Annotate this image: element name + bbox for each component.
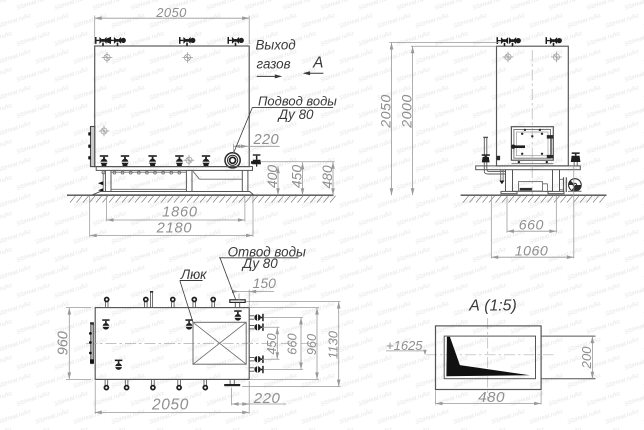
svg-text:2050: 2050 [155,5,187,20]
svg-text:SibHeat.ru/kz: SibHeat.ru/kz [396,319,431,336]
svg-text:SibHeat.ru/kz: SibHeat.ru/kz [16,247,51,264]
svg-text:SibHeat.ru/kz: SibHeat.ru/kz [358,211,393,228]
svg-text:SibHeat.ru/kz: SibHeat.ru/kz [206,175,241,192]
svg-text:Выход: Выход [256,38,296,53]
svg-text:SibHeat.ru/kz: SibHeat.ru/kz [263,409,298,426]
svg-text:SibHeat.ru/kz: SibHeat.ru/kz [567,13,602,30]
svg-text:SibHeat.ru/kz: SibHeat.ru/kz [54,31,89,48]
svg-text:SibHeat.ru/kz: SibHeat.ru/kz [320,283,355,300]
svg-text:SibHeat.ru/kz: SibHeat.ru/kz [624,175,644,192]
svg-text:SibHeat.ru/kz: SibHeat.ru/kz [415,121,450,138]
svg-text:SibHeat.ru/kz: SibHeat.ru/kz [168,67,203,84]
svg-text:SibHeat.ru/kz: SibHeat.ru/kz [187,85,222,102]
svg-text:SibHeat.ru/kz: SibHeat.ru/kz [510,391,545,408]
svg-text:SibHeat.ru/kz: SibHeat.ru/kz [548,283,583,300]
svg-text:SibHeat.ru/kz: SibHeat.ru/kz [0,247,13,264]
svg-text:Люк: Люк [180,267,207,282]
svg-text:SibHeat.ru/kz: SibHeat.ru/kz [35,13,70,30]
svg-text:SibHeat.ru/kz: SibHeat.ru/kz [130,67,165,84]
svg-text:SibHeat.ru/kz: SibHeat.ru/kz [339,121,374,138]
svg-text:SibHeat.ru/kz: SibHeat.ru/kz [244,0,279,12]
svg-text:SibHeat.ru/kz: SibHeat.ru/kz [16,319,51,336]
svg-text:SibHeat.ru/kz: SibHeat.ru/kz [35,373,70,390]
svg-text:SibHeat.ru/kz: SibHeat.ru/kz [434,139,469,156]
svg-text:SibHeat.ru/kz: SibHeat.ru/kz [434,283,469,300]
svg-text:SibHeat.ru/kz: SibHeat.ru/kz [263,229,298,246]
svg-text:SibHeat.ru/kz: SibHeat.ru/kz [624,67,644,84]
svg-text:SibHeat.ru/kz: SibHeat.ru/kz [529,85,564,102]
svg-text:SibHeat.ru/kz: SibHeat.ru/kz [149,301,184,318]
svg-text:SibHeat.ru/kz: SibHeat.ru/kz [605,229,640,246]
svg-text:SibHeat.ru/kz: SibHeat.ru/kz [605,13,640,30]
svg-text:SibHeat.ru/kz: SibHeat.ru/kz [16,139,51,156]
svg-text:SibHeat.ru/kz: SibHeat.ru/kz [35,85,70,102]
svg-text:SibHeat.ru/kz: SibHeat.ru/kz [92,283,127,300]
svg-text:150: 150 [253,275,277,291]
svg-text:SibHeat.ru/kz: SibHeat.ru/kz [339,193,374,210]
svg-text:SibHeat.ru/kz: SibHeat.ru/kz [453,409,488,426]
svg-text:SibHeat.ru/kz: SibHeat.ru/kz [301,121,336,138]
svg-text:SibHeat.ru/kz: SibHeat.ru/kz [491,337,526,354]
svg-text:1860: 1860 [162,205,198,221]
svg-text:SibHeat.ru/kz: SibHeat.ru/kz [35,265,70,282]
svg-text:SibHeat.ru/kz: SibHeat.ru/kz [301,13,336,30]
svg-text:SibHeat.ru/kz: SibHeat.ru/kz [225,85,260,102]
svg-text:SibHeat.ru/kz: SibHeat.ru/kz [206,103,241,120]
svg-text:SibHeat.ru/kz: SibHeat.ru/kz [548,247,583,264]
svg-text:SibHeat.ru/kz: SibHeat.ru/kz [282,139,317,156]
svg-text:450: 450 [264,332,279,354]
svg-text:SibHeat.ru/kz: SibHeat.ru/kz [73,13,108,30]
svg-text:SibHeat.ru/kz: SibHeat.ru/kz [16,283,51,300]
svg-text:SibHeat.ru/kz: SibHeat.ru/kz [491,409,526,426]
svg-text:SibHeat.ru/kz: SibHeat.ru/kz [92,67,127,84]
svg-text:SibHeat.ru/kz: SibHeat.ru/kz [225,229,260,246]
svg-text:SibHeat.ru/kz: SibHeat.ru/kz [111,409,146,426]
svg-text:SibHeat.ru/kz: SibHeat.ru/kz [320,0,355,12]
svg-text:SibHeat.ru/kz: SibHeat.ru/kz [187,121,222,138]
svg-text:SibHeat.ru/kz: SibHeat.ru/kz [434,103,469,120]
svg-text:2050: 2050 [378,94,394,129]
svg-text:SibHeat.ru/kz: SibHeat.ru/kz [0,319,13,336]
svg-text:SibHeat.ru/kz: SibHeat.ru/kz [0,355,13,372]
svg-text:SibHeat.ru/kz: SibHeat.ru/kz [358,0,393,12]
svg-text:SibHeat.ru/kz: SibHeat.ru/kz [130,319,165,336]
svg-text:SibHeat.ru/kz: SibHeat.ru/kz [187,301,222,318]
svg-text:960: 960 [304,333,319,355]
svg-text:SibHeat.ru/kz: SibHeat.ru/kz [0,85,32,102]
svg-text:SibHeat.ru/kz: SibHeat.ru/kz [0,139,13,156]
svg-text:SibHeat.ru/kz: SibHeat.ru/kz [377,301,412,318]
svg-text:SibHeat.ru/kz: SibHeat.ru/kz [377,13,412,30]
svg-text:SibHeat.ru/kz: SibHeat.ru/kz [0,13,32,30]
svg-text:SibHeat.ru/kz: SibHeat.ru/kz [586,0,621,12]
svg-text:SibHeat.ru/kz: SibHeat.ru/kz [548,355,583,372]
svg-text:SibHeat.ru/kz: SibHeat.ru/kz [567,229,602,246]
svg-text:SibHeat.ru/kz: SibHeat.ru/kz [301,409,336,426]
svg-text:SibHeat.ru/kz: SibHeat.ru/kz [206,211,241,228]
svg-text:SibHeat.ru/kz: SibHeat.ru/kz [548,67,583,84]
svg-text:SibHeat.ru/kz: SibHeat.ru/kz [415,229,450,246]
svg-text:SibHeat.ru/kz: SibHeat.ru/kz [339,13,374,30]
svg-text:SibHeat.ru/kz: SibHeat.ru/kz [453,49,488,66]
svg-text:SibHeat.ru/kz: SibHeat.ru/kz [453,229,488,246]
svg-text:SibHeat.ru/kz: SibHeat.ru/kz [567,49,602,66]
svg-text:SibHeat.ru/kz: SibHeat.ru/kz [111,13,146,30]
svg-text:SibHeat.ru/kz: SibHeat.ru/kz [567,121,602,138]
svg-text:SibHeat.ru/kz: SibHeat.ru/kz [472,103,507,120]
svg-text:SibHeat.ru/kz: SibHeat.ru/kz [149,49,184,66]
svg-text:SibHeat.ru/kz: SibHeat.ru/kz [16,355,51,372]
svg-text:SibHeat.ru/kz: SibHeat.ru/kz [529,157,564,174]
svg-text:SibHeat.ru/kz: SibHeat.ru/kz [339,409,374,426]
svg-text:SibHeat.ru/kz: SibHeat.ru/kz [358,283,393,300]
svg-text:SibHeat.ru/kz: SibHeat.ru/kz [263,301,298,318]
svg-text:SibHeat.ru/kz: SibHeat.ru/kz [73,265,108,282]
svg-text:SibHeat.ru/kz: SibHeat.ru/kz [491,265,526,282]
svg-text:SibHeat.ru/kz: SibHeat.ru/kz [586,247,621,264]
svg-text:SibHeat.ru/kz: SibHeat.ru/kz [0,67,13,84]
svg-text:SibHeat.ru/kz: SibHeat.ru/kz [605,85,640,102]
svg-text:SibHeat.ru/kz: SibHeat.ru/kz [510,67,545,84]
svg-text:SibHeat.ru/kz: SibHeat.ru/kz [567,265,602,282]
svg-text:SibHeat.ru/kz: SibHeat.ru/kz [396,31,431,48]
svg-text:SibHeat.ru/kz: SibHeat.ru/kz [92,139,127,156]
svg-text:SibHeat.ru/kz: SibHeat.ru/kz [605,409,640,426]
svg-text:SibHeat.ru/kz: SibHeat.ru/kz [415,193,450,210]
svg-text:SibHeat.ru/kz: SibHeat.ru/kz [168,319,203,336]
svg-text:SibHeat.ru/kz: SibHeat.ru/kz [377,373,412,390]
svg-text:660: 660 [285,332,300,354]
svg-text:SibHeat.ru/kz: SibHeat.ru/kz [548,0,583,12]
svg-text:SibHeat.ru/kz: SibHeat.ru/kz [358,139,393,156]
svg-text:SibHeat.ru/kz: SibHeat.ru/kz [415,301,450,318]
svg-text:SibHeat.ru/kz: SibHeat.ru/kz [73,229,108,246]
svg-text:SibHeat.ru/kz: SibHeat.ru/kz [624,103,644,120]
svg-text:SibHeat.ru/kz: SibHeat.ru/kz [92,103,127,120]
svg-text:SibHeat.ru/kz: SibHeat.ru/kz [54,355,89,372]
svg-text:450: 450 [289,165,305,189]
svg-text:SibHeat.ru/kz: SibHeat.ru/kz [358,247,393,264]
svg-text:200: 200 [579,346,594,370]
svg-text:2050: 2050 [151,397,189,414]
svg-text:SibHeat.ru/kz: SibHeat.ru/kz [624,31,644,48]
svg-text:SibHeat.ru/kz: SibHeat.ru/kz [130,139,165,156]
svg-text:SibHeat.ru/kz: SibHeat.ru/kz [377,49,412,66]
svg-text:SibHeat.ru/kz: SibHeat.ru/kz [415,409,450,426]
svg-text:SibHeat.ru/kz: SibHeat.ru/kz [282,319,317,336]
svg-text:SibHeat.ru/kz: SibHeat.ru/kz [54,283,89,300]
svg-text:SibHeat.ru/kz: SibHeat.ru/kz [586,139,621,156]
svg-text:SibHeat.ru/kz: SibHeat.ru/kz [415,157,450,174]
svg-text:SibHeat.ru/kz: SibHeat.ru/kz [320,211,355,228]
svg-text:SibHeat.ru/kz: SibHeat.ru/kz [16,0,51,12]
svg-text:SibHeat.ru/kz: SibHeat.ru/kz [282,283,317,300]
svg-text:SibHeat.ru/kz: SibHeat.ru/kz [282,391,317,408]
svg-text:SibHeat.ru/kz: SibHeat.ru/kz [472,211,507,228]
svg-text:SibHeat.ru/kz: SibHeat.ru/kz [396,355,431,372]
svg-text:SibHeat.ru/kz: SibHeat.ru/kz [339,301,374,318]
svg-text:SibHeat.ru/kz: SibHeat.ru/kz [73,301,108,318]
svg-text:SibHeat.ru/kz: SibHeat.ru/kz [168,355,203,372]
svg-text:SibHeat.ru/kz: SibHeat.ru/kz [16,211,51,228]
svg-text:SibHeat.ru/kz: SibHeat.ru/kz [54,247,89,264]
svg-text:SibHeat.ru/kz: SibHeat.ru/kz [168,247,203,264]
svg-text:SibHeat.ru/kz: SibHeat.ru/kz [0,211,13,228]
svg-text:SibHeat.ru/kz: SibHeat.ru/kz [54,211,89,228]
svg-text:2000: 2000 [400,94,416,129]
svg-text:SibHeat.ru/kz: SibHeat.ru/kz [0,373,32,390]
svg-text:SibHeat.ru/kz: SibHeat.ru/kz [0,103,13,120]
svg-text:SibHeat.ru/kz: SibHeat.ru/kz [168,103,203,120]
svg-text:SibHeat.ru/kz: SibHeat.ru/kz [35,301,70,318]
svg-text:SibHeat.ru/kz: SibHeat.ru/kz [130,247,165,264]
svg-text:SibHeat.ru/kz: SibHeat.ru/kz [548,211,583,228]
svg-text:SibHeat.ru/kz: SibHeat.ru/kz [358,175,393,192]
svg-text:SibHeat.ru/kz: SibHeat.ru/kz [16,391,51,408]
svg-text:SibHeat.ru/kz: SibHeat.ru/kz [111,337,146,354]
svg-text:SibHeat.ru/kz: SibHeat.ru/kz [0,193,32,210]
svg-text:SibHeat.ru/kz: SibHeat.ru/kz [0,157,32,174]
svg-text:SibHeat.ru/kz: SibHeat.ru/kz [301,229,336,246]
svg-text:SibHeat.ru/kz: SibHeat.ru/kz [0,229,32,246]
svg-text:SibHeat.ru/kz: SibHeat.ru/kz [529,265,564,282]
svg-text:SibHeat.ru/kz: SibHeat.ru/kz [320,67,355,84]
svg-text:SibHeat.ru/kz: SibHeat.ru/kz [0,409,32,426]
svg-text:SibHeat.ru/kz: SibHeat.ru/kz [54,67,89,84]
svg-text:SibHeat.ru/kz: SibHeat.ru/kz [377,229,412,246]
svg-text:SibHeat.ru/kz: SibHeat.ru/kz [16,103,51,120]
svg-text:SibHeat.ru/kz: SibHeat.ru/kz [301,265,336,282]
svg-text:SibHeat.ru/kz: SibHeat.ru/kz [0,175,13,192]
svg-text:SibHeat.ru/kz: SibHeat.ru/kz [16,31,51,48]
svg-text:SibHeat.ru/kz: SibHeat.ru/kz [111,121,146,138]
svg-text:SibHeat.ru/kz: SibHeat.ru/kz [377,157,412,174]
svg-text:SibHeat.ru/kz: SibHeat.ru/kz [130,103,165,120]
svg-text:SibHeat.ru/kz: SibHeat.ru/kz [491,13,526,30]
svg-text:SibHeat.ru/kz: SibHeat.ru/kz [0,31,13,48]
svg-text:SibHeat.ru/kz: SibHeat.ru/kz [54,175,89,192]
svg-text:SibHeat.ru/kz: SibHeat.ru/kz [282,211,317,228]
svg-text:SibHeat.ru/kz: SibHeat.ru/kz [586,31,621,48]
svg-text:SibHeat.ru/kz: SibHeat.ru/kz [92,0,127,12]
svg-text:SibHeat.ru/kz: SibHeat.ru/kz [415,373,450,390]
svg-text:SibHeat.ru/kz: SibHeat.ru/kz [453,13,488,30]
svg-text:SibHeat.ru/kz: SibHeat.ru/kz [16,175,51,192]
svg-text:SibHeat.ru/kz: SibHeat.ru/kz [605,121,640,138]
svg-text:SibHeat.ru/kz: SibHeat.ru/kz [35,121,70,138]
svg-text:SibHeat.ru/kz: SibHeat.ru/kz [54,103,89,120]
svg-text:SibHeat.ru/kz: SibHeat.ru/kz [605,49,640,66]
svg-text:SibHeat.ru/kz: SibHeat.ru/kz [339,229,374,246]
svg-text:SibHeat.ru/kz: SibHeat.ru/kz [586,211,621,228]
svg-text:SibHeat.ru/kz: SibHeat.ru/kz [567,301,602,318]
svg-text:SibHeat.ru/kz: SibHeat.ru/kz [54,139,89,156]
svg-text:SibHeat.ru/kz: SibHeat.ru/kz [567,85,602,102]
svg-text:SibHeat.ru/kz: SibHeat.ru/kz [263,13,298,30]
svg-text:SibHeat.ru/kz: SibHeat.ru/kz [415,265,450,282]
svg-text:SibHeat.ru/kz: SibHeat.ru/kz [510,103,545,120]
svg-text:SibHeat.ru/kz: SibHeat.ru/kz [472,319,507,336]
svg-text:1060: 1060 [515,243,549,259]
svg-text:SibHeat.ru/kz: SibHeat.ru/kz [35,49,70,66]
svg-text:SibHeat.ru/kz: SibHeat.ru/kz [434,67,469,84]
svg-text:SibHeat.ru/kz: SibHeat.ru/kz [320,247,355,264]
svg-text:960: 960 [56,331,72,355]
svg-text:SibHeat.ru/kz: SibHeat.ru/kz [396,247,431,264]
svg-text:SibHeat.ru/kz: SibHeat.ru/kz [206,319,241,336]
svg-text:SibHeat.ru/kz: SibHeat.ru/kz [168,139,203,156]
svg-text:SibHeat.ru/kz: SibHeat.ru/kz [396,67,431,84]
svg-text:SibHeat.ru/kz: SibHeat.ru/kz [396,139,431,156]
svg-text:SibHeat.ru/kz: SibHeat.ru/kz [434,391,469,408]
svg-text:SibHeat.ru/kz: SibHeat.ru/kz [605,265,640,282]
svg-text:SibHeat.ru/kz: SibHeat.ru/kz [453,337,488,354]
svg-text:SibHeat.ru/kz: SibHeat.ru/kz [605,373,640,390]
svg-text:SibHeat.ru/kz: SibHeat.ru/kz [434,31,469,48]
svg-text:SibHeat.ru/kz: SibHeat.ru/kz [396,0,431,12]
svg-text:SibHeat.ru/kz: SibHeat.ru/kz [149,265,184,282]
svg-text:SibHeat.ru/kz: SibHeat.ru/kz [206,355,241,372]
svg-text:SibHeat.ru/kz: SibHeat.ru/kz [187,409,222,426]
svg-text:660: 660 [519,218,544,234]
svg-text:SibHeat.ru/kz: SibHeat.ru/kz [0,121,32,138]
svg-text:SibHeat.ru/kz: SibHeat.ru/kz [206,0,241,12]
svg-text:SibHeat.ru/kz: SibHeat.ru/kz [73,409,108,426]
svg-text:SibHeat.ru/kz: SibHeat.ru/kz [472,0,507,12]
svg-text:SibHeat.ru/kz: SibHeat.ru/kz [320,391,355,408]
svg-text:SibHeat.ru/kz: SibHeat.ru/kz [453,85,488,102]
svg-text:SibHeat.ru/kz: SibHeat.ru/kz [263,373,298,390]
svg-text:SibHeat.ru/kz: SibHeat.ru/kz [377,193,412,210]
svg-text:SibHeat.ru/kz: SibHeat.ru/kz [73,373,108,390]
svg-text:SibHeat.ru/kz: SibHeat.ru/kz [320,139,355,156]
svg-text:SibHeat.ru/kz: SibHeat.ru/kz [301,301,336,318]
svg-text:SibHeat.ru/kz: SibHeat.ru/kz [510,0,545,12]
svg-text:SibHeat.ru/kz: SibHeat.ru/kz [415,85,450,102]
svg-text:SibHeat.ru/kz: SibHeat.ru/kz [187,13,222,30]
svg-text:SibHeat.ru/kz: SibHeat.ru/kz [510,319,545,336]
svg-text:SibHeat.ru/kz: SibHeat.ru/kz [0,301,32,318]
svg-text:SibHeat.ru/kz: SibHeat.ru/kz [624,319,644,336]
svg-text:SibHeat.ru/kz: SibHeat.ru/kz [339,337,374,354]
svg-text:220: 220 [253,132,280,148]
svg-text:SibHeat.ru/kz: SibHeat.ru/kz [0,0,13,12]
svg-text:SibHeat.ru/kz: SibHeat.ru/kz [111,157,146,174]
svg-text:2180: 2180 [156,220,193,236]
svg-text:SibHeat.ru/kz: SibHeat.ru/kz [54,391,89,408]
svg-text:SibHeat.ru/kz: SibHeat.ru/kz [35,229,70,246]
svg-text:SibHeat.ru/kz: SibHeat.ru/kz [339,265,374,282]
svg-text:SibHeat.ru/kz: SibHeat.ru/kz [624,355,644,372]
svg-text:SibHeat.ru/kz: SibHeat.ru/kz [586,391,621,408]
svg-text:220: 220 [253,390,281,407]
svg-text:SibHeat.ru/kz: SibHeat.ru/kz [16,67,51,84]
svg-text:SibHeat.ru/kz: SibHeat.ru/kz [472,139,507,156]
svg-text:SibHeat.ru/kz: SibHeat.ru/kz [339,157,374,174]
svg-text:SibHeat.ru/kz: SibHeat.ru/kz [377,409,412,426]
svg-text:SibHeat.ru/kz: SibHeat.ru/kz [35,193,70,210]
svg-text:SibHeat.ru/kz: SibHeat.ru/kz [92,391,127,408]
svg-text:SibHeat.ru/kz: SibHeat.ru/kz [130,355,165,372]
svg-text:SibHeat.ru/kz: SibHeat.ru/kz [111,49,146,66]
svg-text:SibHeat.ru/kz: SibHeat.ru/kz [586,283,621,300]
svg-text:480: 480 [478,389,505,406]
svg-text:Ду 80: Ду 80 [277,107,314,122]
svg-text:SibHeat.ru/kz: SibHeat.ru/kz [396,283,431,300]
svg-text:SibHeat.ru/kz: SibHeat.ru/kz [624,0,644,12]
svg-text:газов: газов [257,57,291,72]
svg-text:SibHeat.ru/kz: SibHeat.ru/kz [586,103,621,120]
svg-text:SibHeat.ru/kz: SibHeat.ru/kz [396,211,431,228]
svg-text:SibHeat.ru/kz: SibHeat.ru/kz [605,193,640,210]
svg-text:SibHeat.ru/kz: SibHeat.ru/kz [282,0,317,12]
svg-text:SibHeat.ru/kz: SibHeat.ru/kz [434,175,469,192]
svg-text:SibHeat.ru/kz: SibHeat.ru/kz [149,121,184,138]
svg-text:SibHeat.ru/kz: SibHeat.ru/kz [586,175,621,192]
svg-text:SibHeat.ru/kz: SibHeat.ru/kz [586,319,621,336]
svg-text:SibHeat.ru/kz: SibHeat.ru/kz [548,103,583,120]
svg-text:SibHeat.ru/kz: SibHeat.ru/kz [339,49,374,66]
svg-text:SibHeat.ru/kz: SibHeat.ru/kz [320,31,355,48]
svg-text:SibHeat.ru/kz: SibHeat.ru/kz [0,337,32,354]
svg-text:SibHeat.ru/kz: SibHeat.ru/kz [244,211,279,228]
svg-text:SibHeat.ru/kz: SibHeat.ru/kz [111,85,146,102]
svg-text:SibHeat.ru/kz: SibHeat.ru/kz [92,319,127,336]
svg-text:SibHeat.ru/kz: SibHeat.ru/kz [453,121,488,138]
svg-text:SibHeat.ru/kz: SibHeat.ru/kz [301,373,336,390]
svg-text:SibHeat.ru/kz: SibHeat.ru/kz [377,265,412,282]
svg-text:SibHeat.ru/kz: SibHeat.ru/kz [111,229,146,246]
svg-text:SibHeat.ru/kz: SibHeat.ru/kz [434,319,469,336]
svg-text:SibHeat.ru/kz: SibHeat.ru/kz [35,157,70,174]
svg-text:SibHeat.ru/kz: SibHeat.ru/kz [434,247,469,264]
svg-text:SibHeat.ru/kz: SibHeat.ru/kz [92,247,127,264]
svg-text:SibHeat.ru/kz: SibHeat.ru/kz [111,265,146,282]
svg-text:SibHeat.ru/kz: SibHeat.ru/kz [415,13,450,30]
svg-text:SibHeat.ru/kz: SibHeat.ru/kz [453,265,488,282]
svg-text:SibHeat.ru/kz: SibHeat.ru/kz [605,301,640,318]
svg-text:SibHeat.ru/kz: SibHeat.ru/kz [339,373,374,390]
svg-text:SibHeat.ru/kz: SibHeat.ru/kz [358,31,393,48]
svg-text:SibHeat.ru/kz: SibHeat.ru/kz [510,355,545,372]
svg-text:SibHeat.ru/kz: SibHeat.ru/kz [358,391,393,408]
svg-text:SibHeat.ru/kz: SibHeat.ru/kz [130,31,165,48]
svg-text:SibHeat.ru/kz: SibHeat.ru/kz [605,337,640,354]
svg-text:SibHeat.ru/kz: SibHeat.ru/kz [111,301,146,318]
svg-text:400: 400 [264,165,280,189]
svg-text:SibHeat.ru/kz: SibHeat.ru/kz [567,409,602,426]
svg-text:SibHeat.ru/kz: SibHeat.ru/kz [624,139,644,156]
svg-text:SibHeat.ru/kz: SibHeat.ru/kz [0,283,13,300]
svg-text:А (1:5): А (1:5) [468,298,516,315]
svg-text:SibHeat.ru/kz: SibHeat.ru/kz [35,409,70,426]
svg-text:SibHeat.ru/kz: SibHeat.ru/kz [339,85,374,102]
svg-text:SibHeat.ru/kz: SibHeat.ru/kz [434,0,469,12]
svg-text:А: А [312,55,323,72]
svg-text:SibHeat.ru/kz: SibHeat.ru/kz [358,67,393,84]
svg-text:SibHeat.ru/kz: SibHeat.ru/kz [225,301,260,318]
svg-text:SibHeat.ru/kz: SibHeat.ru/kz [149,85,184,102]
svg-text:SibHeat.ru/kz: SibHeat.ru/kz [0,265,32,282]
svg-text:SibHeat.ru/kz: SibHeat.ru/kz [624,283,644,300]
svg-text:1130: 1130 [326,330,341,359]
svg-text:SibHeat.ru/kz: SibHeat.ru/kz [529,301,564,318]
svg-text:Ду 80: Ду 80 [241,256,278,271]
svg-text:SibHeat.ru/kz: SibHeat.ru/kz [472,247,507,264]
svg-text:SibHeat.ru/kz: SibHeat.ru/kz [0,49,32,66]
svg-text:SibHeat.ru/kz: SibHeat.ru/kz [529,373,564,390]
